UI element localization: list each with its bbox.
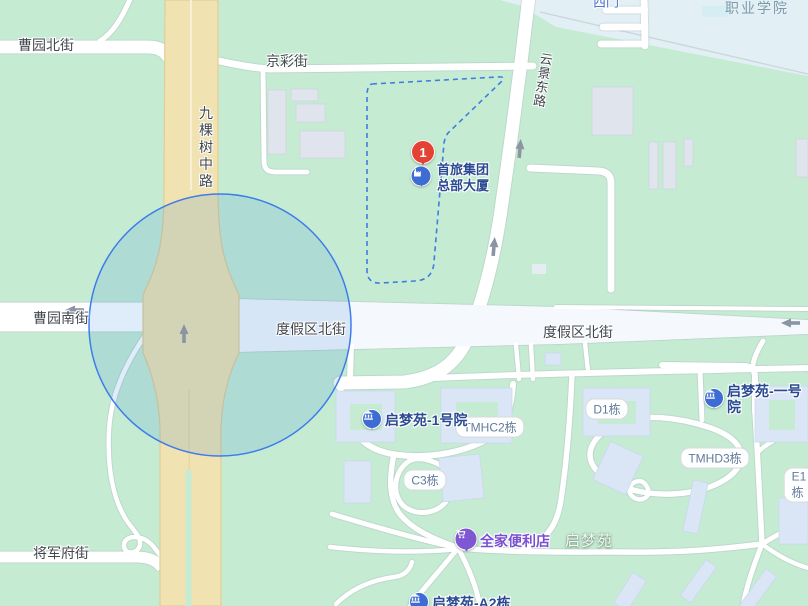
- map-viewport[interactable]: 曹园北街 京彩街 九棵树中路 云景东路 曹园南街 度假区北街 度假区北街 将军府…: [0, 0, 808, 606]
- familymart-poi-icon[interactable]: [455, 528, 478, 551]
- street-label-dujiaqu-north-west: 度假区北街: [276, 319, 346, 339]
- street-label-jiukeshu-middle: 九棵树中路: [196, 106, 216, 191]
- result-marker-1[interactable]: 1: [411, 140, 435, 164]
- hq-label-line2: 总部大厦: [437, 178, 489, 194]
- yard1-west-poi-icon[interactable]: [362, 409, 382, 429]
- street-label-jiangjunfu: 将军府街: [33, 543, 89, 563]
- yard1-east-poi-label[interactable]: 启梦苑-一号院: [727, 383, 808, 415]
- badge-e1[interactable]: E1栋: [784, 468, 808, 503]
- badge-c3[interactable]: C3栋: [403, 470, 446, 491]
- a2-poi-icon[interactable]: [409, 592, 429, 606]
- hq-poi-label[interactable]: 首旅集团 总部大厦: [437, 162, 489, 194]
- badge-d1[interactable]: D1栋: [585, 399, 628, 420]
- street-label-caoyuan-south: 曹园南街: [33, 308, 89, 328]
- label-vocational-college: 职业学院: [725, 0, 789, 18]
- badge-tmhd3[interactable]: TMHD3栋: [680, 448, 749, 469]
- marker-number: 1: [419, 146, 426, 159]
- street-label-dujiaqu-north-east: 度假区北街: [543, 322, 613, 342]
- street-label-jingcai: 京彩街: [266, 51, 308, 71]
- label-west-gate: 西门: [593, 0, 619, 11]
- yard1-west-poi-label[interactable]: 启梦苑-1号院: [385, 412, 467, 428]
- yard1-east-poi-icon[interactable]: [704, 388, 724, 408]
- a2-poi-label[interactable]: 启梦苑-A2栋: [432, 595, 511, 606]
- label-qimengyuan-area: 启梦苑: [565, 530, 613, 551]
- street-label-caoyuan-north: 曹园北街: [18, 35, 74, 55]
- map-canvas[interactable]: [0, 0, 808, 606]
- hq-label-line1: 首旅集团: [437, 162, 489, 178]
- familymart-poi-label[interactable]: 全家便利店: [480, 533, 550, 549]
